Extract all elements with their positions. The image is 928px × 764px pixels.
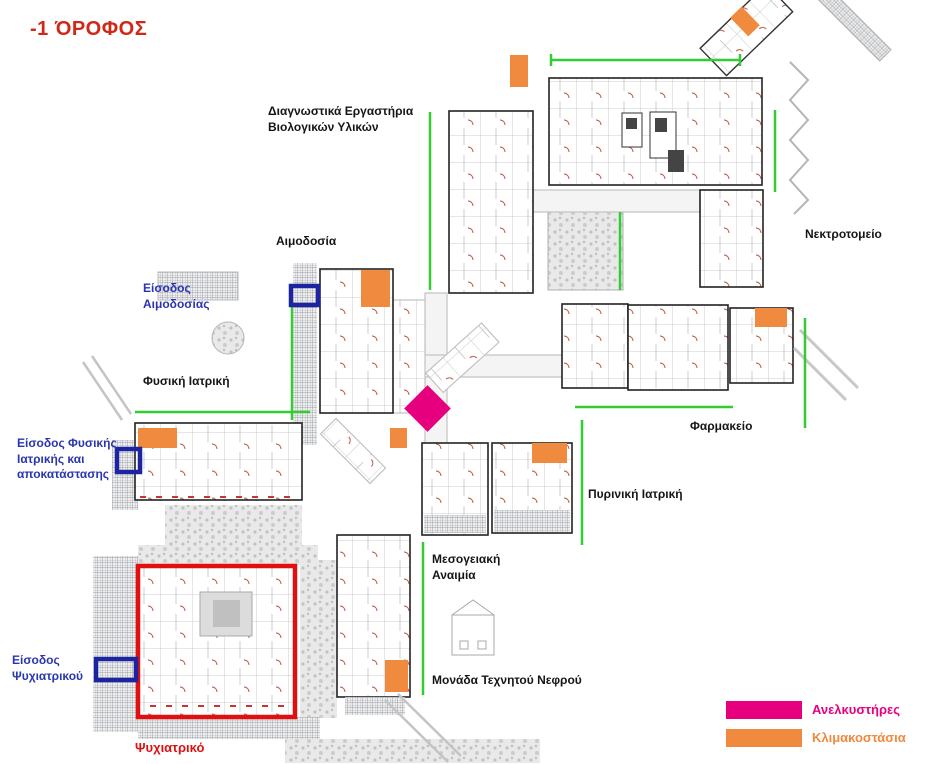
label-blood-donation: Αιμοδοσία — [276, 234, 336, 250]
staircase-marker — [138, 428, 177, 448]
floor-plan-drawing — [0, 0, 928, 764]
label-nuclear-medicine: Πυρινική Ιατρική — [588, 487, 683, 503]
label-pharmacy: Φαρμακείο — [690, 419, 752, 435]
label-psychiatric-entrance: Είσοδος Ψυχιατρικού — [12, 653, 83, 684]
label-diagnostic-labs: Διαγνωστικά Εργαστήρια Βιολογικών Υλικών — [268, 104, 413, 135]
label-physical-medicine: Φυσική Ιατρική — [143, 374, 230, 390]
staircase-marker — [510, 55, 528, 87]
label-morgue: Νεκτροτομείο — [805, 227, 882, 243]
floor-plan-canvas: -1 ΌΡΟΦΟΣ Διαγνωστικά Εργαστήρια Βιολογι… — [0, 0, 928, 764]
block-pharmacy-west — [562, 304, 628, 388]
label-mediterranean-anemia: Μεσογειακή Αναιμία — [432, 552, 500, 583]
staircase-marker — [361, 270, 390, 307]
legend-elevators-swatch — [726, 701, 802, 719]
label-psychiatric: Ψυχιατρικό — [135, 740, 204, 757]
block-upper-wing — [449, 111, 533, 293]
block-morgue-wing — [700, 190, 763, 287]
psychiatric-ward-outline — [138, 566, 295, 717]
staircase-marker — [385, 660, 408, 692]
legend-staircases-label: Κλιμακοστάσια — [812, 730, 906, 745]
block-pharmacy — [628, 305, 728, 390]
staircase-marker — [532, 443, 567, 463]
legend-elevators-label: Ανελκυστήρες — [812, 702, 900, 717]
legend-staircases-swatch — [726, 729, 802, 747]
page-title: -1 ΌΡΟΦΟΣ — [30, 18, 147, 41]
label-artificial-kidney-unit: Μονάδα Τεχνητού Νεφρού — [432, 673, 582, 689]
staircase-marker — [755, 308, 787, 327]
label-physical-medicine-entrance: Είσοδος Φυσικής Ιατρικής και αποκατάστασ… — [17, 436, 117, 483]
label-blood-donation-entrance: Είσοδος Αιμοδοσίας — [143, 281, 209, 312]
staircase-marker — [390, 428, 407, 448]
